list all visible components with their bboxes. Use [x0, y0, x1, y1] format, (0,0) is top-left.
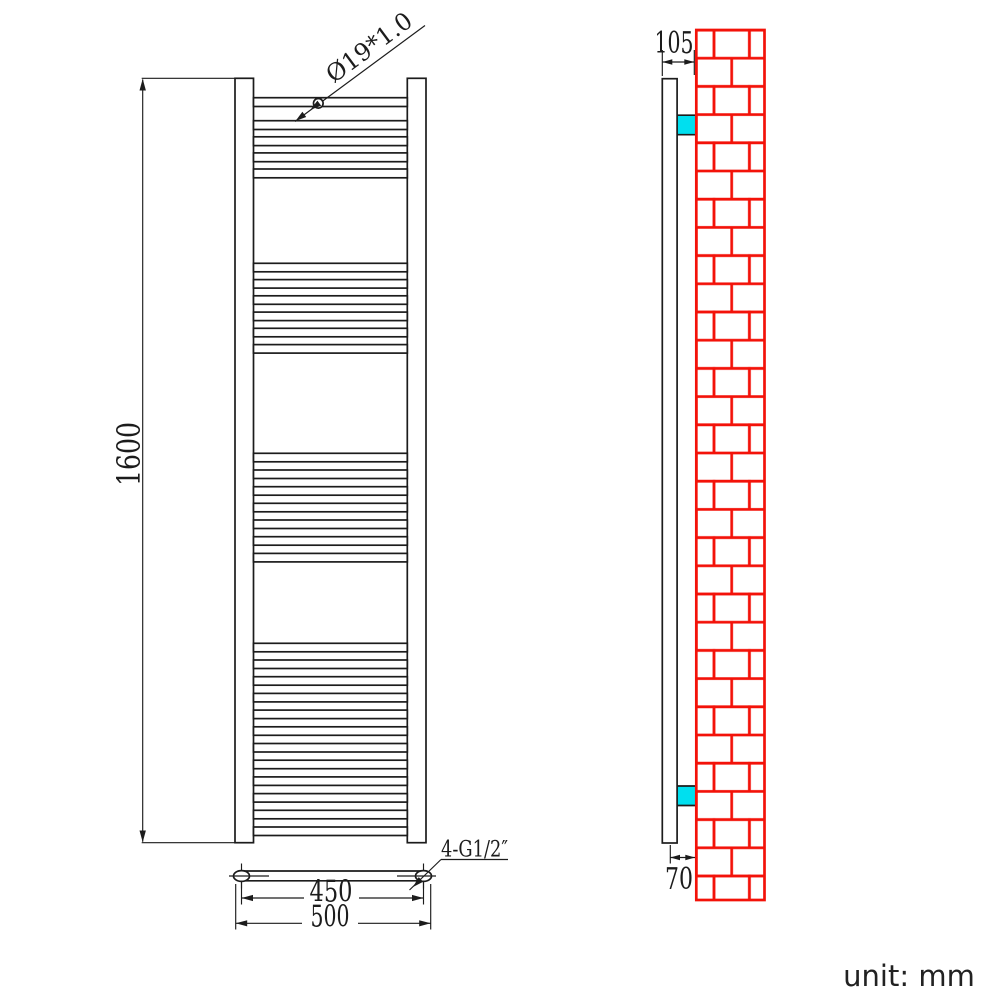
radiator-tube	[254, 553, 408, 562]
arrowhead-right-icon	[412, 895, 424, 901]
tube-diameter-text: Ø19*1.0	[321, 7, 418, 89]
radiator-tube	[254, 677, 408, 686]
radiator-tube	[254, 453, 408, 462]
tube-array	[254, 98, 408, 836]
radiator-tube	[254, 296, 408, 305]
radiator-tube	[254, 537, 408, 546]
radiator-tube	[254, 153, 408, 162]
arrowhead-up-icon	[140, 79, 146, 91]
radiator-tube	[254, 137, 408, 146]
radiator-tube	[254, 660, 408, 669]
radiator-tube	[254, 710, 408, 719]
height-dimension-text: 1600	[110, 422, 148, 486]
radiator-tube	[254, 98, 408, 107]
radiator-side-profile	[662, 79, 677, 843]
dimension-depth-105: 105	[655, 26, 695, 76]
radiator-tube	[254, 121, 408, 130]
overall-width-text: 500	[311, 900, 350, 935]
arrowhead-left-icon	[670, 855, 680, 860]
radiator-tube	[254, 693, 408, 702]
brick-wall	[696, 30, 764, 900]
unit-note-text: unit: mm	[843, 959, 975, 993]
radiator-tube	[254, 470, 408, 479]
arrowhead-right-icon	[419, 920, 431, 926]
side-view: 105 70	[655, 26, 765, 900]
arrowhead-down-icon	[140, 831, 146, 843]
wall-brackets	[677, 115, 697, 805]
radiator-dimension-drawing: 1600 Ø19*1.0	[0, 0, 1001, 1001]
radiator-tube	[254, 280, 408, 289]
radiator-tube	[254, 744, 408, 753]
technical-drawing-canvas: 1600 Ø19*1.0	[0, 0, 1001, 1001]
dimension-depth-70: 70	[665, 845, 695, 897]
dimension-height-1600: 1600	[110, 78, 254, 842]
bracket-block	[677, 786, 696, 806]
right-rail	[407, 78, 426, 842]
radiator-tube	[254, 312, 408, 321]
radiator-tube	[254, 727, 408, 736]
radiator-tube	[254, 794, 408, 803]
front-view: 1600 Ø19*1.0	[110, 7, 508, 935]
radiator-tube	[254, 503, 408, 512]
left-rail	[235, 78, 254, 842]
arrowhead-right-icon	[685, 855, 695, 860]
radiator-tube	[254, 760, 408, 769]
radiator-tube	[254, 810, 408, 819]
thread-spec-text: 4-G1/2″	[441, 838, 508, 863]
radiator-tube	[254, 487, 408, 496]
radiator-tube	[254, 169, 408, 178]
brick-wall-fill	[696, 30, 764, 900]
radiator-tube	[254, 328, 408, 337]
arrowhead-left-icon	[242, 895, 254, 901]
depth-bottom-text: 70	[665, 862, 693, 897]
leader-arrowhead-icon	[296, 112, 307, 121]
radiator-tube	[254, 263, 408, 272]
arrowhead-left-icon	[236, 920, 248, 926]
radiator-tube	[254, 345, 408, 354]
depth-overall-text: 105	[655, 26, 694, 61]
radiator-tube	[254, 520, 408, 529]
radiator-tube	[254, 643, 408, 652]
radiator-tube	[254, 827, 408, 836]
radiator-tube	[254, 777, 408, 786]
bracket-block	[677, 115, 696, 135]
